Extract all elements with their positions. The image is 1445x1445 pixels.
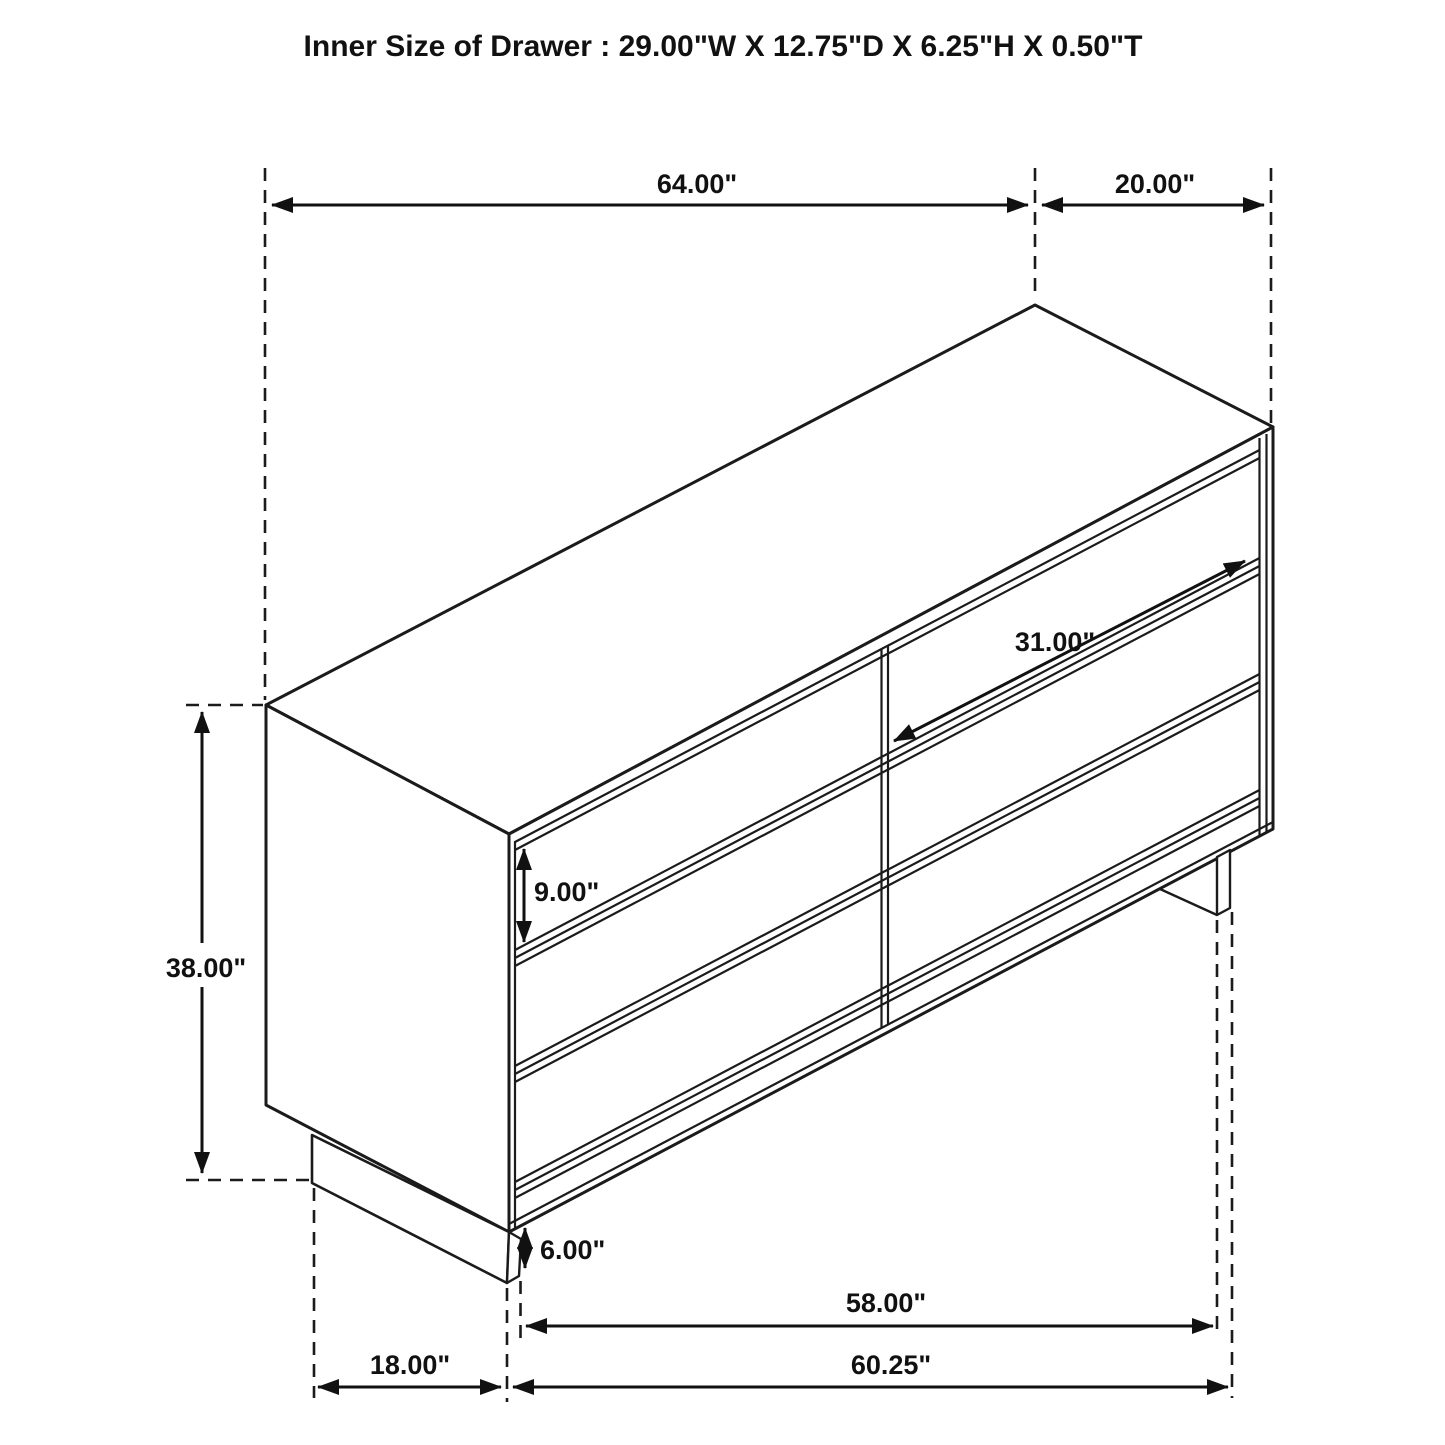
label-drawer-width: 31.00" — [1015, 627, 1095, 657]
label-base-clearance: 58.00" — [846, 1288, 926, 1318]
label-overall-width: 64.00" — [657, 169, 737, 199]
base-front-edge — [507, 1232, 521, 1283]
drawing-title: Inner Size of Drawer : 29.00"W X 12.75"D… — [304, 30, 1143, 63]
label-base-outer-width: 60.25" — [851, 1350, 931, 1380]
right-leg — [1217, 850, 1230, 915]
label-drawer-height: 9.00" — [534, 877, 599, 907]
label-base-depth: 18.00" — [370, 1350, 450, 1380]
dimension-diagram-page: Inner Size of Drawer : 29.00"W X 12.75"D… — [0, 0, 1445, 1445]
label-overall-depth: 20.00" — [1115, 169, 1195, 199]
label-base-height: 6.00" — [540, 1235, 605, 1265]
label-overall-height: 38.00" — [166, 953, 246, 983]
dresser-dimension-drawing: Inner Size of Drawer : 29.00"W X 12.75"D… — [0, 0, 1445, 1445]
